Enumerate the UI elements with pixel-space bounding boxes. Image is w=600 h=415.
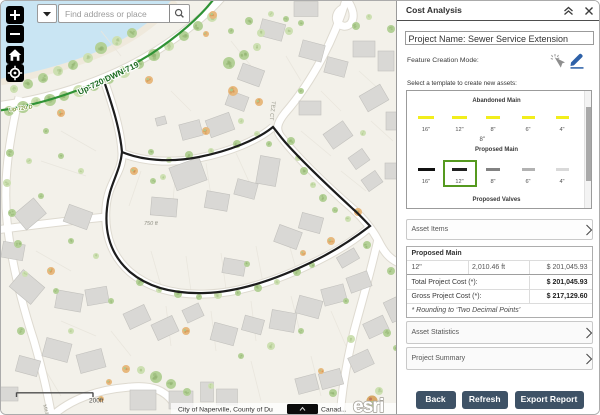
svg-text:750 ft: 750 ft: [144, 221, 158, 227]
svg-text:City of Naperville, County of: City of Naperville, County of Du: [178, 407, 273, 414]
svg-text:200ft: 200ft: [89, 398, 104, 405]
svg-text:esri: esri: [353, 396, 384, 415]
svg-text:Canad...: Canad...: [321, 407, 347, 414]
